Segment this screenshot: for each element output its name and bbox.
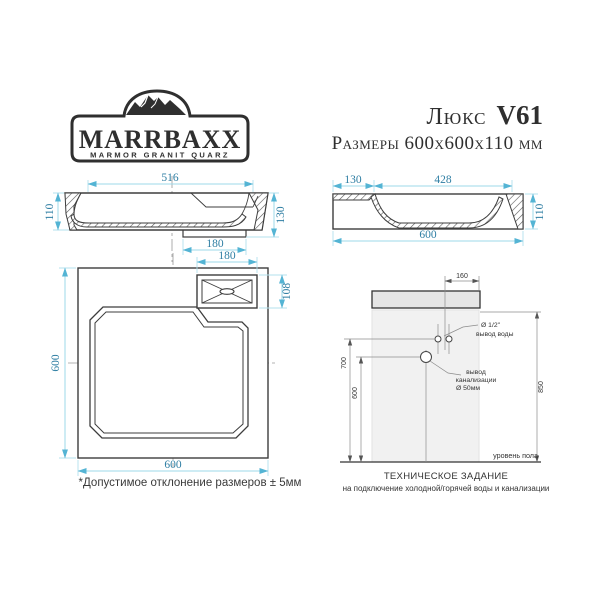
brand-tagline: MARMOR GRANIT QUARZ: [90, 151, 230, 160]
drain-outlet-label: вывод: [466, 369, 486, 376]
size-line: Размеры 600х600х110 мм: [332, 133, 543, 155]
dimension-516: 516: [88, 172, 253, 192]
dim-label: 850: [538, 381, 545, 393]
tech-note: ТЕХНИЧЕСКОЕ ЗАДАНИЕ на подключение холод…: [328, 471, 564, 493]
top-view-drawing: 600 600 180 108: [40, 250, 295, 495]
water-outlet-label: вывод воды: [476, 331, 514, 338]
dim-label: 600: [419, 229, 437, 241]
dim-label: 600: [50, 354, 62, 372]
drain-size-label: Ø 50мм: [456, 385, 480, 392]
dim-label: 160: [456, 273, 468, 280]
dim-label: 180: [206, 238, 224, 250]
dimension-600-bottom: 600: [78, 459, 268, 476]
front-section-drawing: 130 428 600 110: [305, 170, 555, 266]
tolerance-note: *Допустимое отклонение размеров ± 5мм: [55, 477, 325, 489]
dimension-600: 600: [333, 229, 523, 246]
model-code: V61: [497, 100, 544, 131]
dim-label: 130: [344, 174, 362, 186]
title-block: Люкс V61 Размеры 600х600х110 мм: [332, 100, 543, 155]
drain-outlet-label: канализации: [456, 377, 497, 384]
dimension-130: 130: [333, 174, 374, 192]
dim-label: 110: [45, 203, 56, 220]
installation-diagram: 160 700 600 850 Ø 1/2": [335, 262, 565, 470]
sink-profile: [372, 291, 480, 308]
overflow-slot: [220, 289, 234, 295]
dimension-428: 428: [374, 174, 512, 192]
drawing-sheet: MARRBAXX MARMOR GRANIT QUARZ Люкс V61 Ра…: [0, 0, 600, 600]
tech-note-title: ТЕХНИЧЕСКОЕ ЗАДАНИЕ: [328, 471, 564, 482]
floor-level-label: уровень пола: [493, 451, 538, 460]
overflow-box: [197, 275, 257, 308]
dimension-110: 110: [525, 194, 546, 229]
tech-note-subtitle: на подключение холодной/горячей воды и к…: [328, 484, 564, 493]
dim-label: 600: [164, 459, 182, 471]
dim-label: 180: [218, 250, 236, 262]
water-size-label: Ø 1/2": [481, 322, 501, 329]
dim-label: 108: [281, 283, 293, 301]
dim-label: 130: [275, 206, 287, 224]
dim-label: 428: [434, 174, 452, 186]
dim-label: 516: [161, 172, 179, 184]
dim-label: 600: [352, 387, 359, 399]
dim-label: 700: [341, 357, 348, 369]
model-line: Люкс V61: [426, 100, 543, 131]
dim-label: 110: [534, 203, 546, 220]
dimension-850: 850: [537, 312, 545, 462]
brand-logo: MARRBAXX MARMOR GRANIT QUARZ: [62, 86, 252, 171]
model-name: Люкс: [426, 104, 486, 131]
